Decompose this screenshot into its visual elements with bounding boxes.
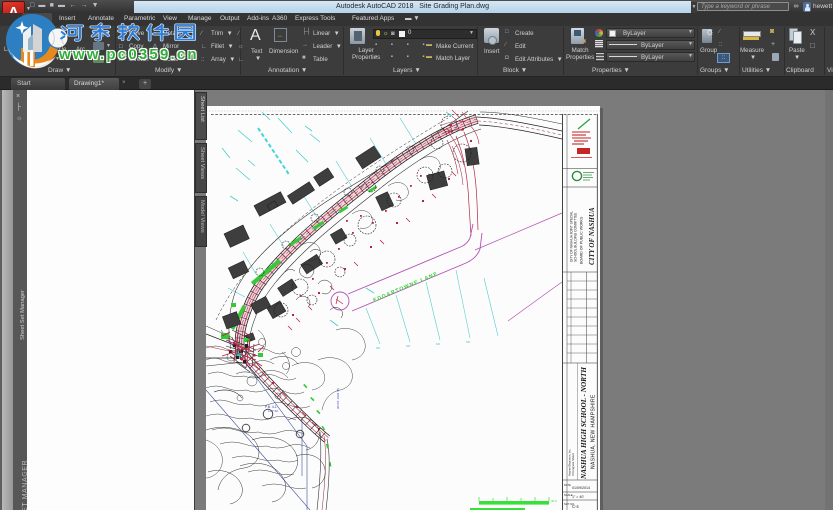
svg-text:40 ft: 40 ft	[551, 499, 557, 503]
svg-text:LOT 62: LOT 62	[268, 409, 278, 413]
svg-text:CITY OF NASHUA: CITY OF NASHUA	[588, 207, 596, 265]
svg-text:EDGARTOWNE LANE: EDGARTOWNE LANE	[372, 271, 439, 304]
svg-text:NASHUA HIGH SCHOOL - NORTH: NASHUA HIGH SCHOOL - NORTH	[580, 367, 588, 480]
svg-text:1" = 40': 1" = 40'	[572, 495, 584, 499]
svg-text:C-4: C-4	[572, 504, 579, 509]
svg-text:N/F: N/F	[376, 346, 381, 350]
svg-text:N/F: N/F	[436, 342, 441, 346]
svg-text:N/F: N/F	[466, 340, 471, 344]
svg-text:SE DIST 1/2 MI: SE DIST 1/2 MI	[336, 388, 340, 409]
svg-text:3 Congress Street: 3 Congress Street	[571, 453, 575, 476]
svg-text:N/F: N/F	[406, 344, 411, 348]
svg-text:01/09/2014: 01/09/2014	[572, 486, 590, 490]
svg-text:DATE: DATE	[564, 483, 571, 487]
svg-text:NASHUA, NEW HAMPSHIRE: NASHUA, NEW HAMPSHIRE	[591, 394, 597, 469]
svg-text:BOARD OF PUBLIC WORKS: BOARD OF PUBLIC WORKS	[580, 216, 584, 264]
svg-text:SCHOOL BUILDING COMMITTEE: SCHOOL BUILDING COMMITTEE	[574, 213, 578, 262]
